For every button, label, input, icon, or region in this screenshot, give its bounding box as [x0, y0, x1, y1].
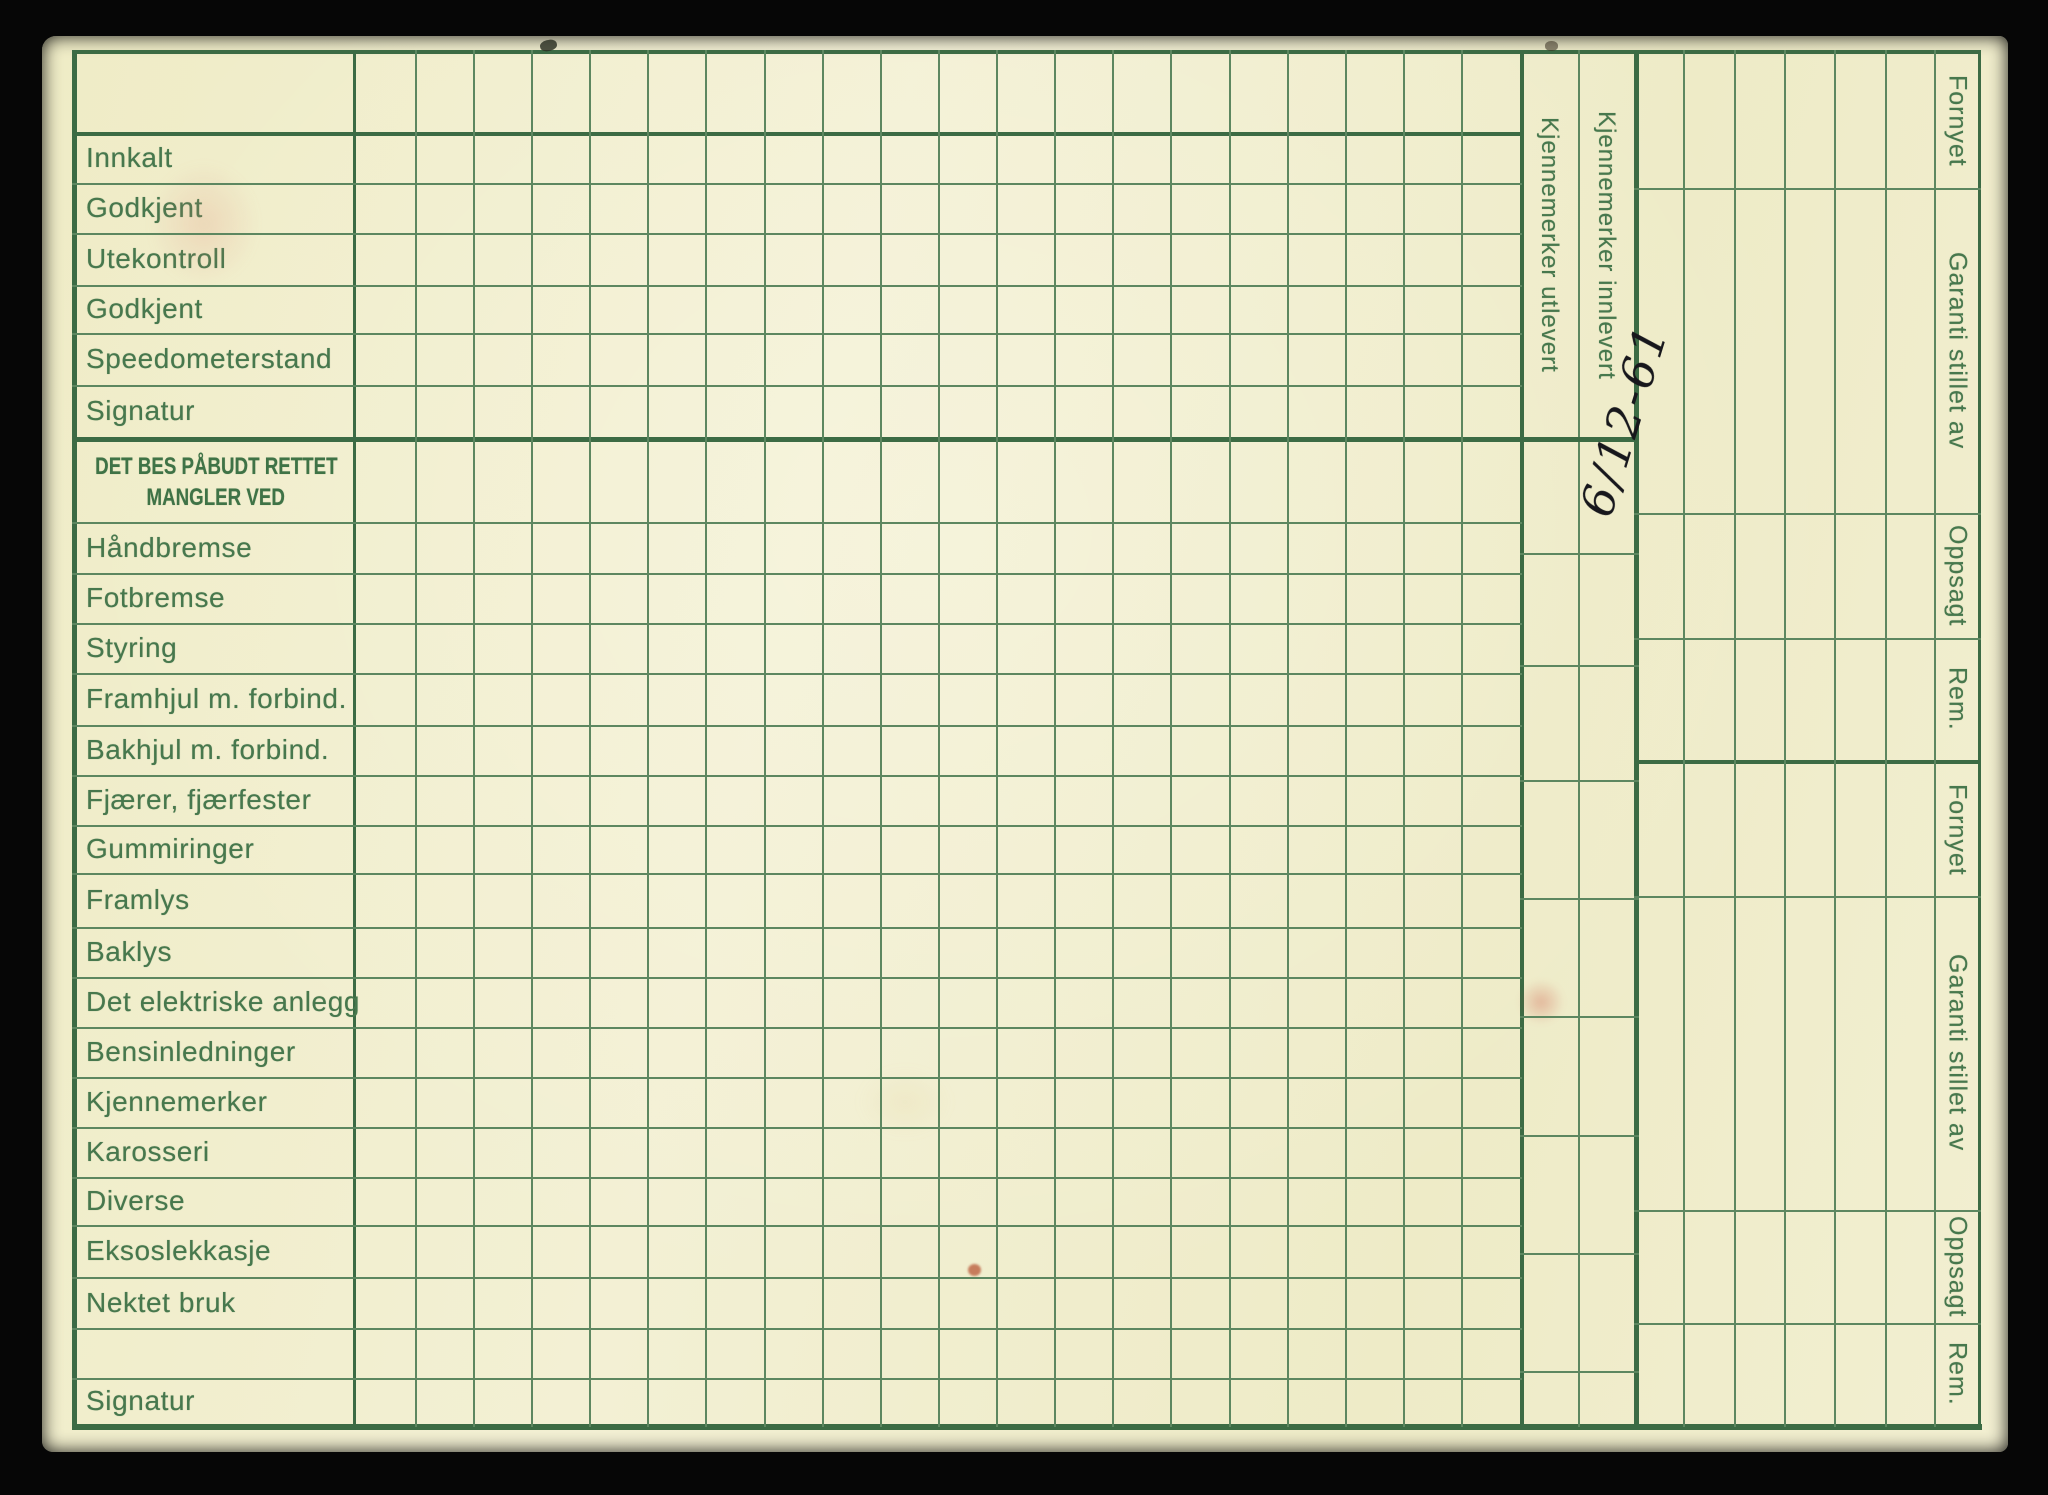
paper-dot	[968, 1264, 981, 1276]
grid-hline	[72, 825, 1522, 827]
grid-hline	[72, 522, 1522, 524]
grid-hline	[1634, 1210, 1981, 1212]
grid-vline	[1229, 50, 1231, 1427]
inspection-table: Innkalt Godkjent Utekontroll Godkjent Sp…	[0, 0, 2048, 1495]
row-label-diverse: Diverse	[86, 1177, 350, 1225]
grid-hline	[72, 333, 1522, 335]
grid-hline	[72, 1177, 1522, 1179]
table-border-left	[72, 50, 77, 1430]
right-label-garanti-lower: Garanti stillet av	[1934, 896, 1980, 1210]
right-label-rem-lower: Rem.	[1934, 1323, 1980, 1424]
scan-background: { "card": { "status_rows": ["Innkalt", "…	[0, 0, 2048, 1495]
grid-hline	[72, 1277, 1522, 1279]
grid-vline	[1287, 50, 1289, 1427]
grid-hline	[1520, 1253, 1639, 1255]
grid-vline	[1934, 50, 1936, 1427]
grid-vline	[880, 50, 882, 1427]
grid-hline	[72, 285, 1522, 287]
grid-hline	[72, 183, 1522, 185]
row-label-handbremse: Håndbremse	[86, 522, 350, 573]
label-column-divider	[353, 50, 356, 1427]
grid-vline	[1170, 50, 1172, 1427]
grid-vline	[1461, 50, 1463, 1427]
right-label-rem-upper: Rem.	[1934, 638, 1980, 760]
grid-hline	[1634, 188, 1981, 190]
grid-hline	[1634, 1323, 1981, 1325]
row-label-baklys: Baklys	[86, 927, 350, 977]
right-section-divider	[1634, 50, 1639, 1427]
row-label-gummiringer: Gummiringer	[86, 825, 350, 873]
grid-vline	[1345, 50, 1347, 1427]
right-label-oppsagt-upper: Oppsagt	[1934, 513, 1980, 638]
grid-vline	[1683, 50, 1685, 1427]
row-label-innkalt: Innkalt	[86, 133, 350, 183]
grid-hline	[72, 623, 1522, 625]
grid-hline	[72, 775, 1522, 777]
grid-hline	[1520, 553, 1639, 555]
grid-vline	[589, 50, 591, 1427]
right-label-fornyet-upper: Fornyet	[1934, 54, 1980, 188]
row-label-godkjent-2: Godkjent	[86, 285, 350, 333]
grid-hline	[72, 673, 1522, 675]
right-half-thick-rule	[1634, 760, 1981, 764]
column-header-kjennemerker-innlevert: Kjennemerker innlevert	[1578, 55, 1634, 435]
grid-vline	[1784, 50, 1786, 1427]
right-label-oppsagt-lower: Oppsagt	[1934, 1210, 1980, 1323]
row-label-signatur-bottom: Signatur	[86, 1378, 350, 1424]
row-label-styring: Styring	[86, 623, 350, 673]
grid-vline	[1834, 50, 1836, 1427]
row-label-eksoslekkasje: Eksoslekkasje	[86, 1225, 350, 1277]
defects-section-title-line2: MANGLER VED	[147, 482, 285, 513]
row-label-fotbremse: Fotbremse	[86, 573, 350, 623]
grid-vline	[473, 50, 475, 1427]
grid-hline	[72, 1127, 1522, 1129]
row-label-bakhjul: Bakhjul m. forbind.	[86, 725, 350, 775]
grid-vline	[1403, 50, 1405, 1427]
row-label-speedometerstand: Speedometerstand	[86, 333, 350, 385]
table-border-bottom	[72, 1424, 1982, 1430]
grid-hline	[1520, 1371, 1639, 1373]
grid-hline	[1520, 665, 1639, 667]
grid-vline	[531, 50, 533, 1427]
defects-section-title: DET BES PÅBUDT RETTET MANGLER VED	[75, 441, 357, 522]
grid-hline	[72, 725, 1522, 727]
row-label-kjennemerker: Kjennemerker	[86, 1077, 350, 1127]
right-label-fornyet-lower: Fornyet	[1934, 764, 1980, 896]
table-border-top	[72, 50, 1981, 54]
grid-hline	[1634, 638, 1981, 640]
grid-hline	[72, 927, 1522, 929]
grid-vline	[764, 50, 766, 1427]
grid-hline	[72, 1077, 1522, 1079]
grid-hline	[1634, 513, 1981, 515]
grid-hline	[72, 385, 1522, 387]
grid-vline	[415, 50, 417, 1427]
grid-hline	[72, 1027, 1522, 1029]
grid-vline	[705, 50, 707, 1427]
grid-vline	[1112, 50, 1114, 1427]
grid-vline	[996, 50, 998, 1427]
grid-hline	[72, 977, 1522, 979]
row-label-elektriske: Det elektriske anlegg	[86, 977, 350, 1027]
grid-hline	[72, 873, 1522, 875]
grid-vline	[822, 50, 824, 1427]
grid-hline	[72, 1328, 1522, 1330]
grid-hline	[1520, 780, 1639, 782]
row-label-godkjent-1: Godkjent	[86, 183, 350, 233]
defects-section-title-line1: DET BES PÅBUDT RETTET	[95, 451, 337, 482]
row-label-framlys: Framlys	[86, 873, 350, 927]
column-header-kjennemerker-utlevert: Kjennemerker utlevert	[1520, 55, 1578, 435]
row-label-nektet-bruk: Nektet bruk	[86, 1277, 350, 1328]
grid-vline	[1054, 50, 1056, 1427]
paper-smudge	[845, 1058, 965, 1146]
grid-vline	[1885, 50, 1887, 1427]
right-label-garanti-upper: Garanti stillet av	[1934, 188, 1980, 513]
grid-hline	[72, 233, 1522, 235]
grid-hline	[72, 1225, 1522, 1227]
grid-hline	[1634, 896, 1981, 898]
row-label-signatur-top: Signatur	[86, 385, 350, 437]
row-label-utekontroll: Utekontroll	[86, 233, 350, 285]
grid-hline	[1520, 1135, 1639, 1137]
grid-vline	[647, 50, 649, 1427]
grid-hline	[72, 1378, 1522, 1380]
grid-hline	[1520, 1016, 1639, 1018]
grid-vline	[938, 50, 940, 1427]
row-label-fjaerer: Fjærer, fjærfester	[86, 775, 350, 825]
row-label-framhjul: Framhjul m. forbind.	[86, 673, 350, 725]
row-label-karosseri: Karosseri	[86, 1127, 350, 1177]
row-label-bensinledninger: Bensinledninger	[86, 1027, 350, 1077]
grid-vline	[1734, 50, 1736, 1427]
grid-hline	[72, 573, 1522, 575]
grid-hline	[1520, 898, 1639, 900]
